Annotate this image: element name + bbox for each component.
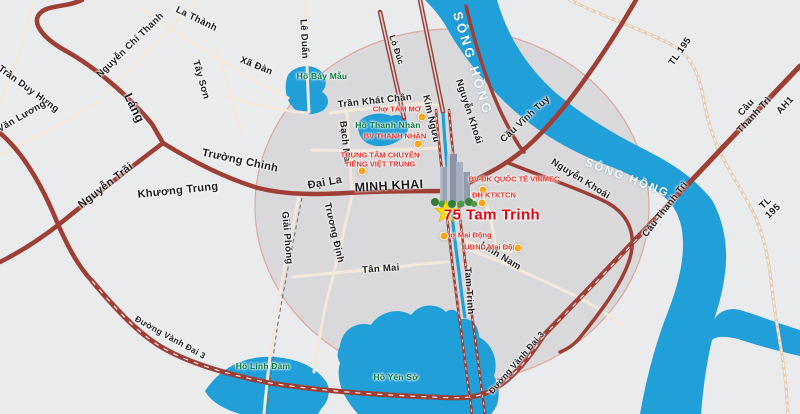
label-truong-chinh: Trường Chinh	[201, 147, 279, 175]
poi-label-cho-tam-mo: Chợ TÁM MƠ	[373, 106, 421, 115]
label-song-hong-1: SÔNG HỒNG	[449, 10, 495, 118]
poi-dot-bv-thanh-nhan	[414, 140, 423, 149]
label-ho-bay-mau: Hồ Bảy Mẫu	[297, 72, 348, 82]
label-ho-thanh-nhan: Hồ Thanh Nhàn	[355, 121, 420, 131]
label-vanh-dai-3-1: Đường Vành Đai 3	[133, 314, 207, 361]
label-tan-mai: Tân Mai	[362, 263, 400, 277]
label-ho-yen-so: Hồ Yên Sở	[373, 373, 418, 383]
label-lang: Láng	[121, 91, 148, 125]
label-truong-dinh: Trương Định	[321, 202, 345, 264]
poi-dot-dh-ktktcn	[478, 199, 487, 208]
poi-dot-trung-tam-tieng-viet-trung	[358, 167, 367, 176]
label-tl-195-2: TL 195	[752, 190, 789, 226]
poi-label-vinmec: BV-ĐK QUỐC TẾ VINMEC	[469, 176, 560, 185]
poi-dot-ubnd-mai-dong	[514, 244, 523, 253]
label-tl-195-1: TL 195	[667, 36, 694, 68]
label-vanh-dai-3-2: Đường Vành Đai 3	[487, 330, 546, 396]
label-la-thanh: La Thành	[174, 5, 219, 34]
label-tam-trinh: Tam Trinh	[461, 267, 475, 315]
label-dai-la: Đại La	[307, 174, 343, 192]
map-canvas: Trần Duy HưngNguyễn Chí ThanhLa ThànhTây…	[0, 0, 800, 414]
poi-label-trung-tam-tieng-viet-trung: TRUNG TÂM CHUYÊN TIẾNG VIỆT TRUNG	[341, 151, 420, 168]
label-ah1: AH1	[775, 95, 797, 117]
label-khuong-trung: Khương Trung	[137, 180, 219, 201]
label-75-tam-trinh: 75 Tam Trinh	[444, 206, 540, 223]
poi-dot-cho-tam-mo	[418, 113, 427, 122]
label-nguyen-chi-thanh: Nguyễn Chí Thanh	[95, 11, 166, 80]
label-le-duan: Lê Duẩn	[297, 19, 310, 59]
label-ho-linh-dam: Hồ Linh Đàm	[236, 362, 291, 372]
label-giai-phong: Giải Phóng	[278, 211, 294, 265]
label-nguyen-trai: Nguyễn Trãi	[76, 161, 136, 212]
label-lo-duc: Lò Đúc	[387, 34, 406, 66]
label-cau-thanh-tri-1: Cầu Thanh Trì	[726, 87, 775, 138]
label-layer: Trần Duy HưngNguyễn Chí ThanhLa ThànhTây…	[0, 0, 800, 414]
label-xa-dan: Xã Đàn	[238, 56, 274, 79]
poi-dot-cho-mai-dong	[440, 232, 449, 241]
label-cau-vinh-tuy: Cầu Vĩnh Tuy	[499, 94, 553, 145]
label-minh-khai: MINH KHAI	[354, 177, 423, 195]
label-le-van-luong: Lê Văn Lương	[0, 99, 48, 143]
label-tay-son: Tây Sơn	[189, 59, 211, 100]
